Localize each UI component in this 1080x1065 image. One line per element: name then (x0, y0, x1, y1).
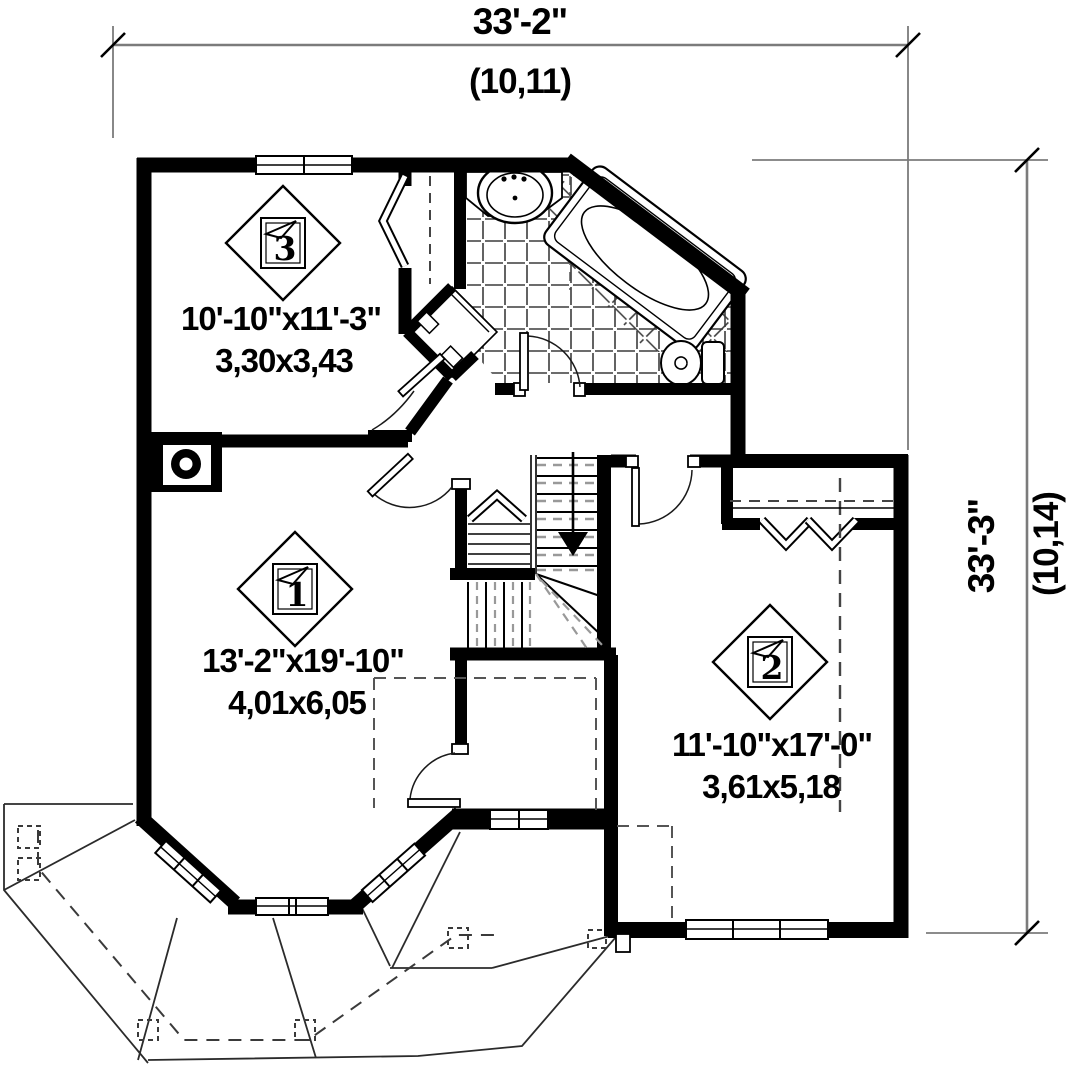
room-marker-1: 1 (238, 532, 352, 646)
stair-dashed-rails (537, 465, 601, 570)
window-bay-right (362, 844, 425, 902)
porch-posts (18, 826, 606, 1040)
bedroom3-size-metric: 3,30x3,43 (215, 342, 353, 379)
bedroom1-door (368, 454, 452, 508)
toilet (661, 341, 724, 385)
window-bedroom3-north (256, 156, 352, 174)
hall-door (408, 753, 460, 807)
room-marker-number: 1 (286, 575, 309, 614)
dimension-top-sublabel: (10,11) (469, 62, 571, 101)
room-marker-number: 2 (761, 648, 784, 687)
stair-down-arrow (558, 452, 588, 556)
linen-closet-bifold-door (470, 495, 524, 519)
porch-roof-outline (4, 804, 622, 1063)
room-marker-3: 3 (226, 186, 340, 300)
open-to-below-outline (374, 678, 596, 812)
bedroom1-size-metric: 4,01x6,05 (228, 684, 366, 721)
linen-closet-shelves (468, 524, 530, 564)
roof-below-bedroom2 (617, 826, 672, 920)
door-jamb-caps (452, 383, 700, 952)
bedroom3-closet-bifold-door (383, 176, 405, 266)
stair-winders (536, 574, 603, 650)
bedroom1-size-imperial: 13'-2"x19'-10" (202, 642, 404, 679)
room-marker-2: 2 (713, 605, 827, 719)
floor-plan-page: 33'-2" (10,11) 33'-3" (10,14) (0, 0, 1080, 1065)
window-bedroom2-south (686, 920, 828, 939)
bedroom2-size-imperial: 11'-10"x17'-0" (672, 726, 872, 763)
dimension-right-label: 33'-3" (961, 499, 1002, 593)
dimension-right: 33'-3" (10,14) (752, 148, 1066, 945)
porch-wall-notch (616, 934, 630, 952)
chimney (148, 432, 222, 492)
room-marker-number: 3 (274, 229, 297, 268)
window-hall-south (490, 810, 548, 829)
staircase (468, 452, 603, 650)
window-bay-center (256, 898, 328, 915)
floor-plan-drawing: 33'-2" (10,11) 33'-3" (10,14) (0, 0, 1080, 1065)
bedroom2-door (632, 468, 692, 526)
porch-roof-dashed-lines (38, 830, 500, 1040)
bedroom2-closet-bifold-doors (762, 520, 856, 545)
bedroom3-size-imperial: 10'-10"x11'-3" (181, 300, 381, 337)
dimension-right-sublabel: (10,14) (1027, 492, 1066, 596)
bedroom2-size-metric: 3,61x5,18 (702, 768, 840, 805)
dimension-top-label: 33'-2" (473, 1, 567, 42)
stair-lower-flight (468, 582, 530, 649)
